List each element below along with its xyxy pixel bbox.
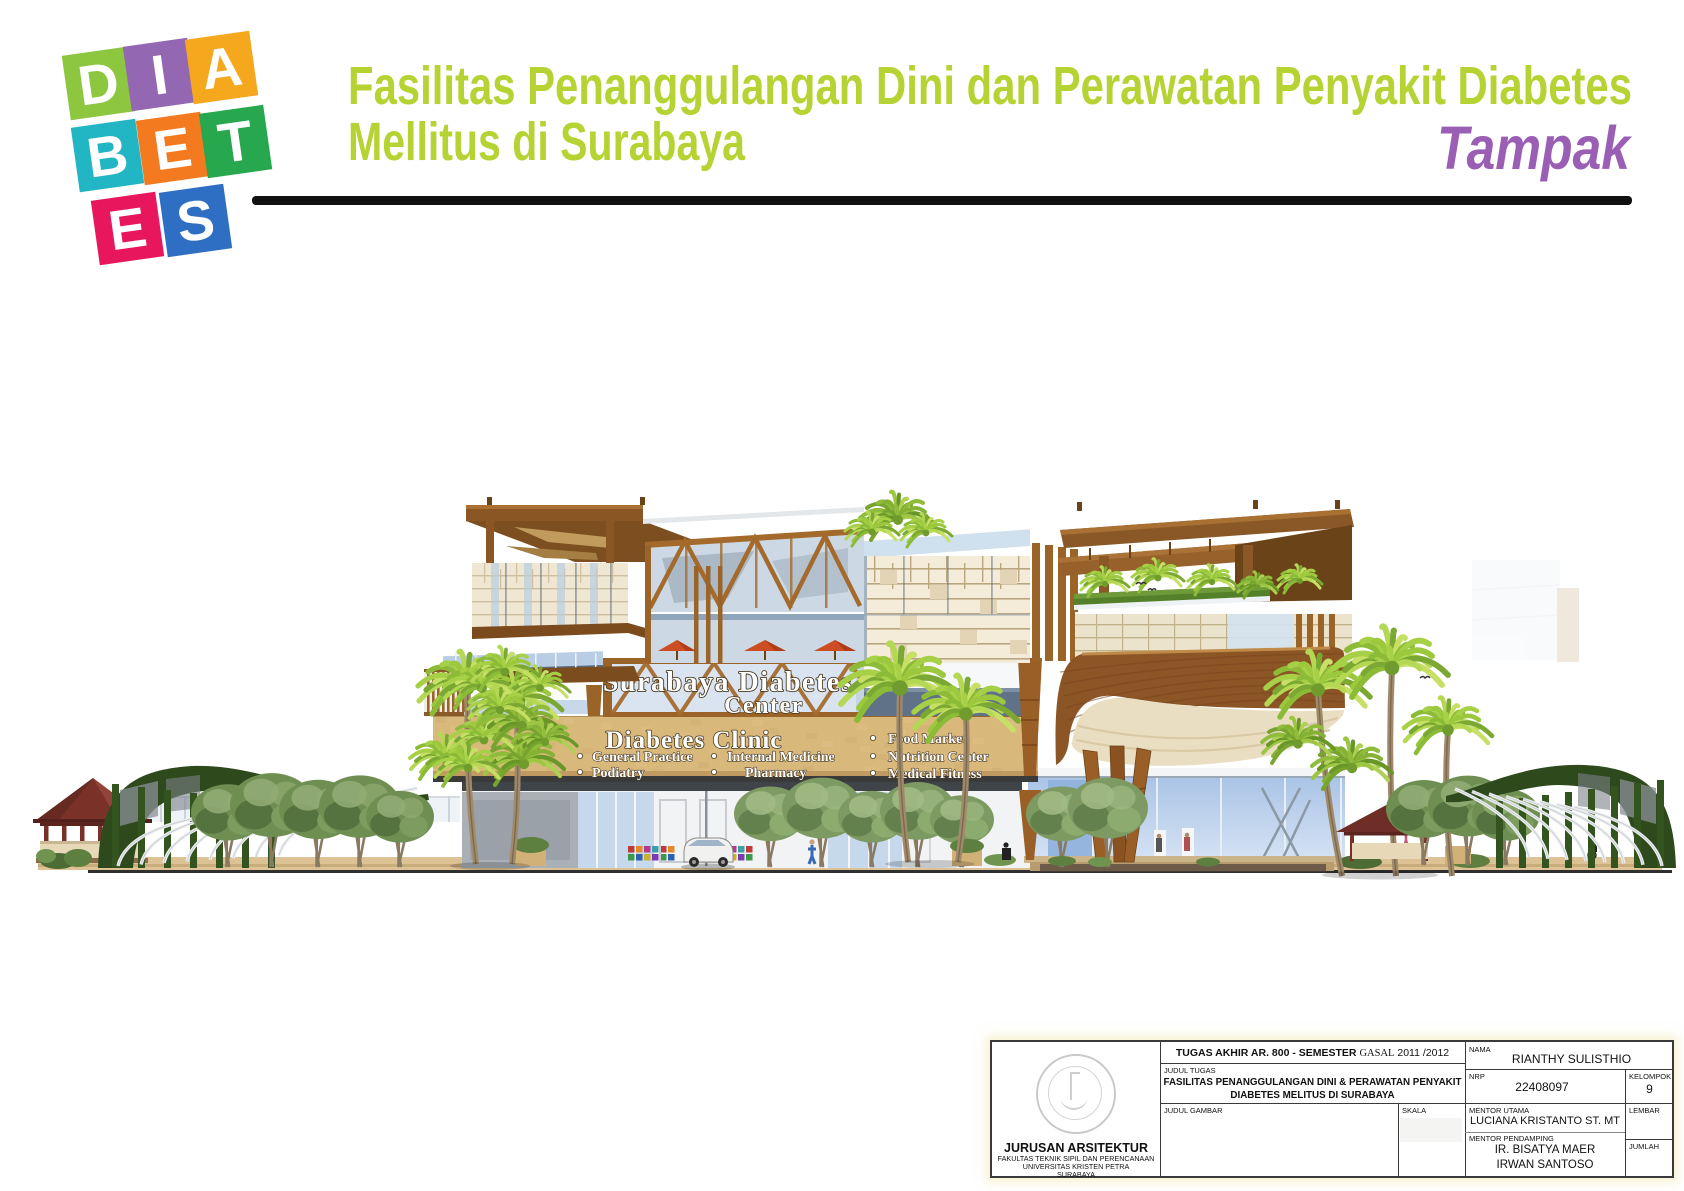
svg-text:Center: Center [724,693,804,719]
svg-text:Nutrition Center: Nutrition Center [888,750,989,765]
svg-text:Pharmacy: Pharmacy [745,766,806,781]
svg-text:Internal Medicine: Internal Medicine [727,750,835,765]
svg-text:Podiatry: Podiatry [592,766,644,781]
svg-text:General Practice: General Practice [592,750,693,765]
